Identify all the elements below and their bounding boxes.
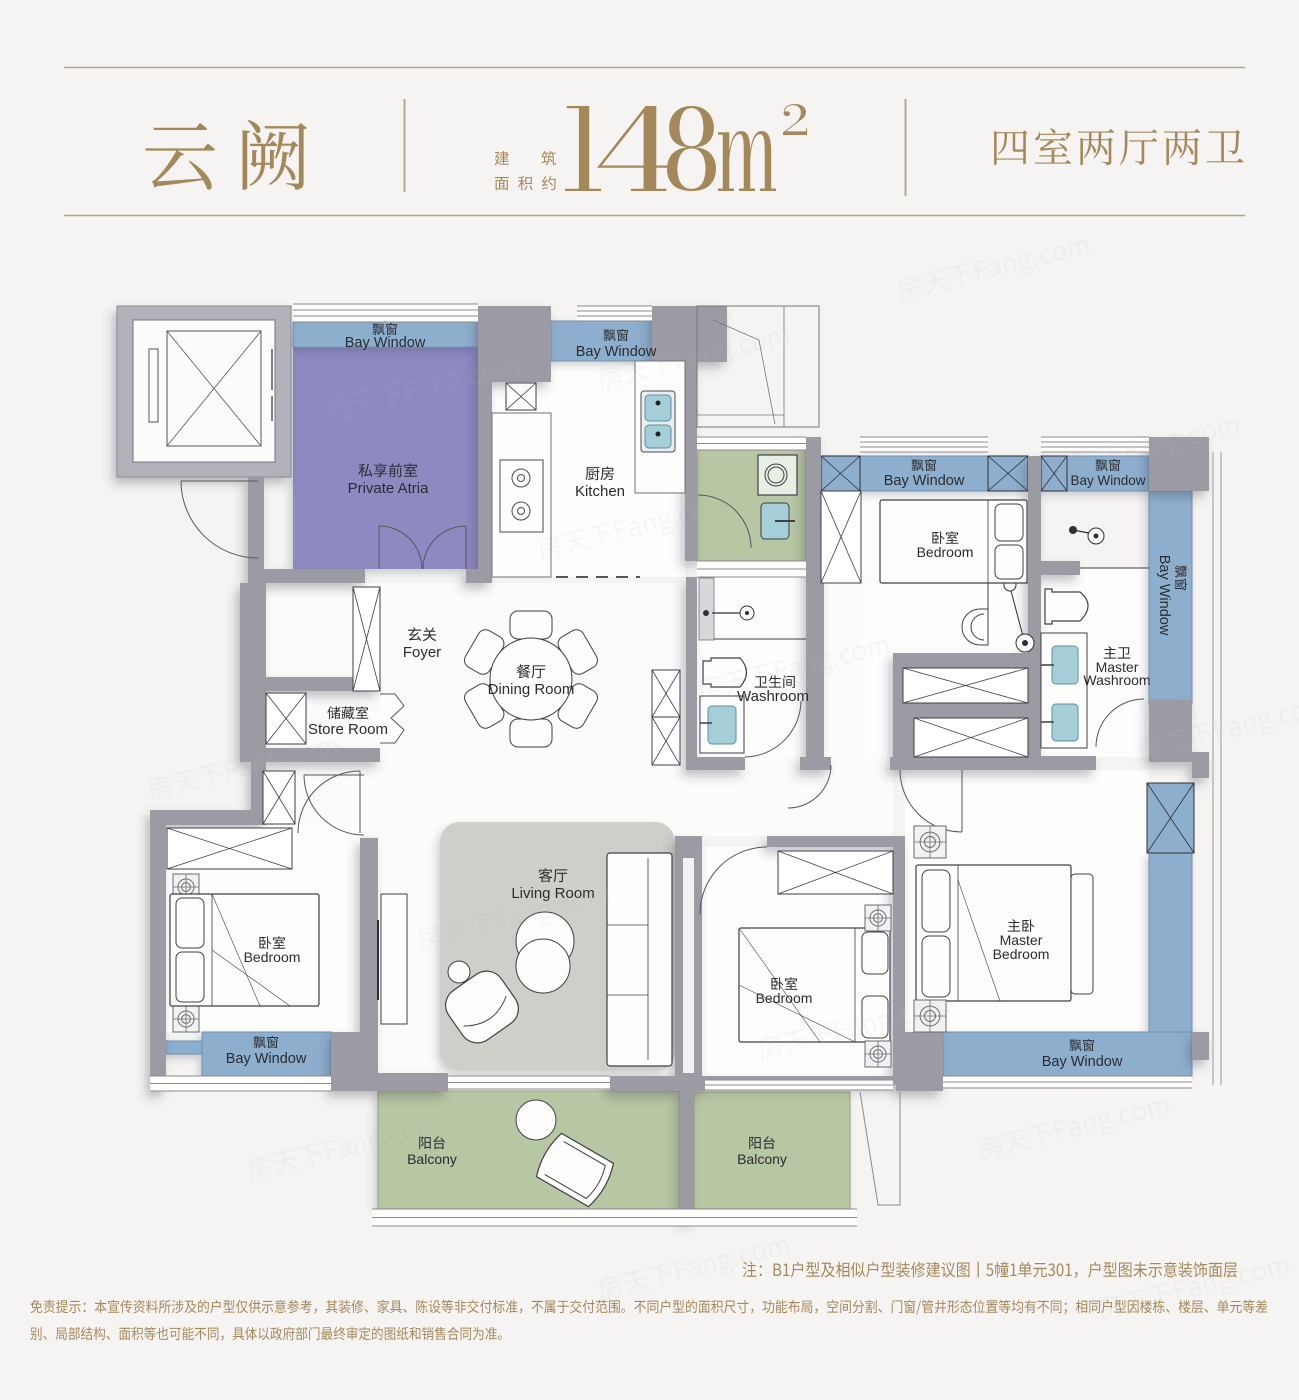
svg-text:Washroom: Washroom [737,688,809,705]
svg-text:Balcony: Balcony [407,1151,457,1167]
svg-text:Balcony: Balcony [737,1151,787,1167]
svg-text:Bedroom: Bedroom [993,946,1050,962]
svg-text:Bay Window: Bay Window [1070,473,1145,488]
svg-text:Washroom: Washroom [1083,672,1150,688]
svg-text:Bay Window: Bay Window [226,1051,307,1067]
svg-text:Bedroom: Bedroom [756,990,813,1006]
svg-text:Bay Window: Bay Window [1156,555,1172,636]
svg-text:Bedroom: Bedroom [244,949,301,965]
svg-text:Dining Room: Dining Room [488,681,575,698]
svg-text:Private Atria: Private Atria [348,480,430,497]
svg-text:Kitchen: Kitchen [575,483,625,500]
svg-text:Bay Window: Bay Window [345,335,426,351]
svg-text:Foyer: Foyer [403,644,441,661]
svg-text:Bedroom: Bedroom [917,544,974,560]
svg-text:Bay Window: Bay Window [884,473,965,489]
svg-text:Bay Window: Bay Window [1042,1054,1123,1070]
svg-text:Bay Window: Bay Window [576,344,657,360]
svg-text:Store Room: Store Room [308,721,388,738]
